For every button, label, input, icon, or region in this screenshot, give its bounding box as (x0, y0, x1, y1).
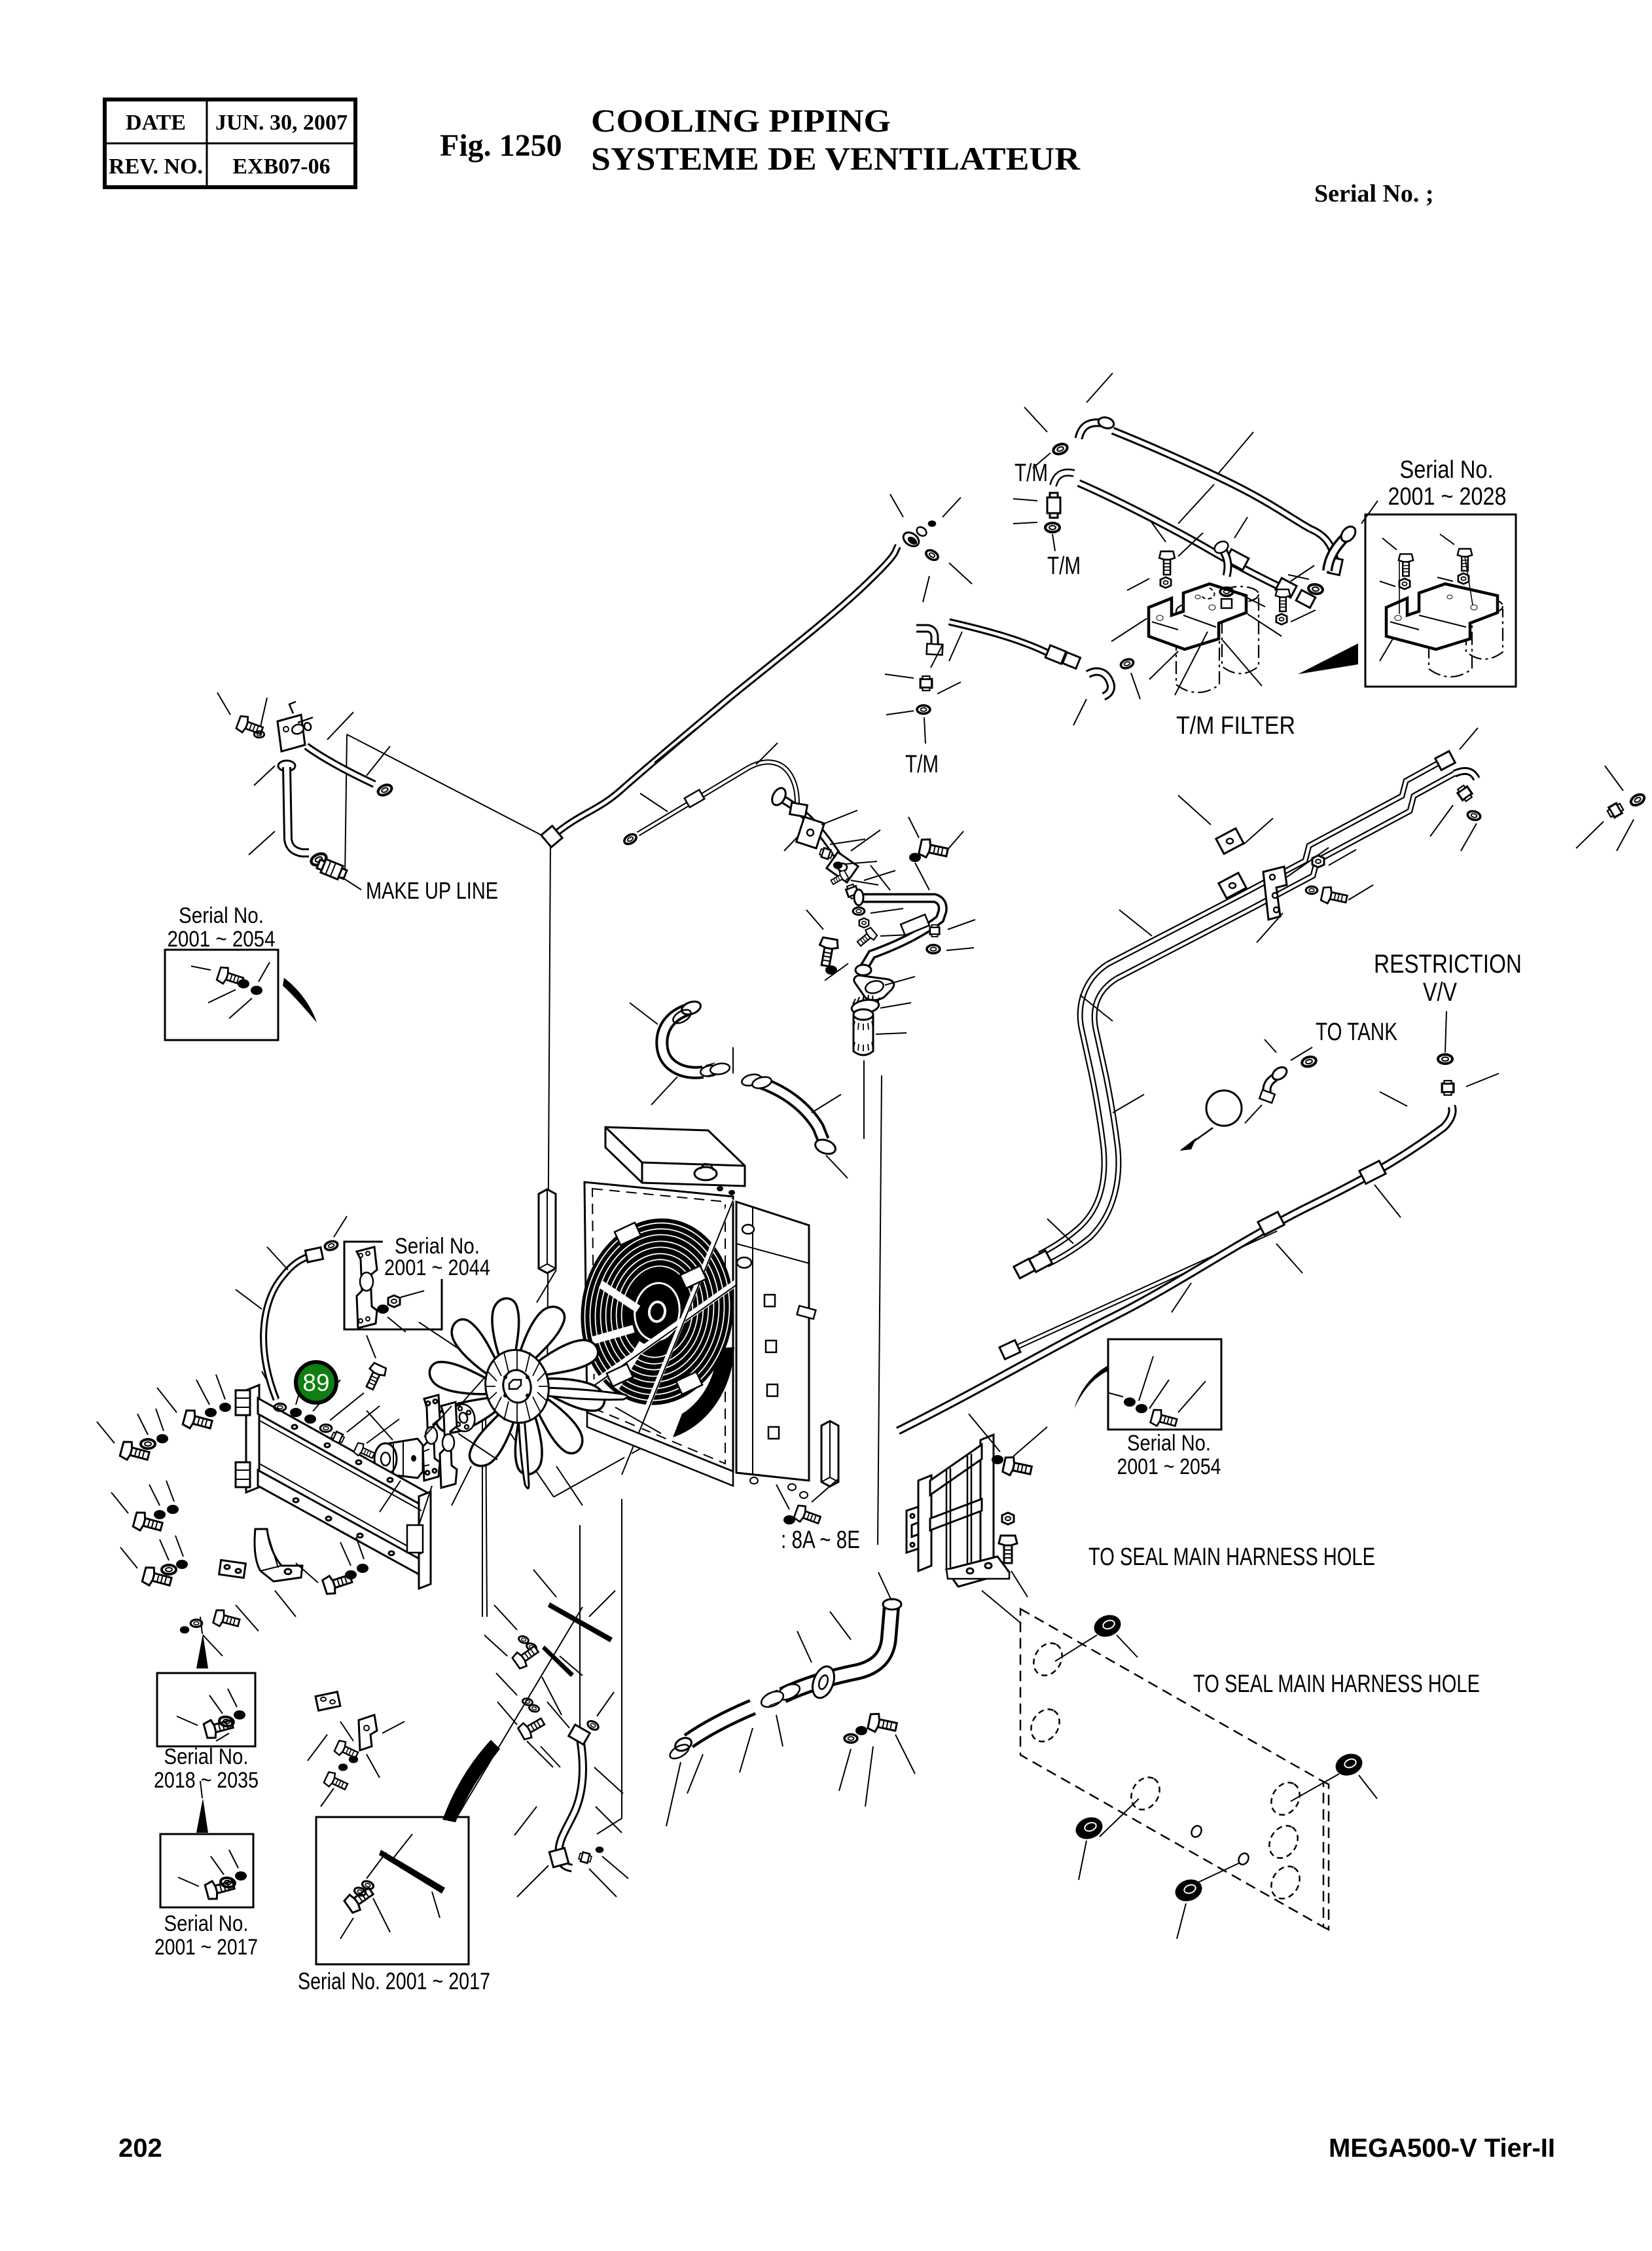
svg-text:Serial No. 2001 ~ 2017: Serial No. 2001 ~ 2017 (298, 1968, 490, 1994)
svg-text:TO SEAL MAIN HARNESS HOLE: TO SEAL MAIN HARNESS HOLE (1193, 1670, 1480, 1698)
svg-text:REV. NO.: REV. NO. (109, 154, 203, 179)
svg-text:2018 ~ 2035: 2018 ~ 2035 (154, 1768, 259, 1793)
svg-text:Serial No. ;: Serial No. ; (1314, 180, 1434, 207)
svg-text:MEGA500-V Tier-II: MEGA500-V Tier-II (1329, 2134, 1555, 2163)
svg-text:2001 ~ 2017: 2001 ~ 2017 (154, 1935, 258, 1960)
svg-text:Serial No.: Serial No. (164, 1911, 249, 1936)
svg-text:Serial No.: Serial No. (179, 903, 264, 928)
svg-text:2001 ~ 2028: 2001 ~ 2028 (1388, 483, 1507, 511)
svg-text:COOLING PIPING: COOLING PIPING (591, 102, 891, 139)
svg-text:EXB07-06: EXB07-06 (232, 154, 330, 179)
svg-text:T/M: T/M (1047, 552, 1081, 580)
svg-text:Serial No.: Serial No. (164, 1744, 249, 1769)
svg-text:MAKE UP LINE: MAKE UP LINE (366, 877, 498, 904)
svg-text:2001 ~ 2054: 2001 ~ 2054 (1117, 1454, 1221, 1479)
svg-text:DATE: DATE (126, 111, 186, 135)
svg-text:RESTRICTION: RESTRICTION (1374, 950, 1522, 979)
svg-text:2001 ~ 2054: 2001 ~ 2054 (168, 927, 276, 952)
svg-text:Fig. 1250: Fig. 1250 (440, 128, 562, 163)
svg-text:JUN. 30, 2007: JUN. 30, 2007 (215, 111, 348, 135)
svg-text:202: 202 (118, 2134, 162, 2163)
svg-text:SYSTEME DE VENTILATEUR: SYSTEME DE VENTILATEUR (591, 140, 1081, 177)
svg-text:T/M FILTER: T/M FILTER (1176, 712, 1295, 740)
svg-text:V/V: V/V (1423, 978, 1457, 1007)
svg-text:T/M: T/M (1015, 459, 1048, 487)
svg-text:: 8A ~ 8E: : 8A ~ 8E (781, 1526, 860, 1554)
svg-text:TO SEAL MAIN HARNESS HOLE: TO SEAL MAIN HARNESS HOLE (1088, 1543, 1375, 1571)
svg-text:89: 89 (302, 1369, 329, 1396)
svg-text:Serial No.: Serial No. (1127, 1431, 1211, 1456)
svg-text:Serial No.: Serial No. (1400, 456, 1494, 484)
svg-text:T/M: T/M (905, 751, 939, 778)
svg-text:2001 ~ 2044: 2001 ~ 2044 (384, 1255, 490, 1280)
svg-text:TO TANK: TO TANK (1316, 1018, 1397, 1046)
